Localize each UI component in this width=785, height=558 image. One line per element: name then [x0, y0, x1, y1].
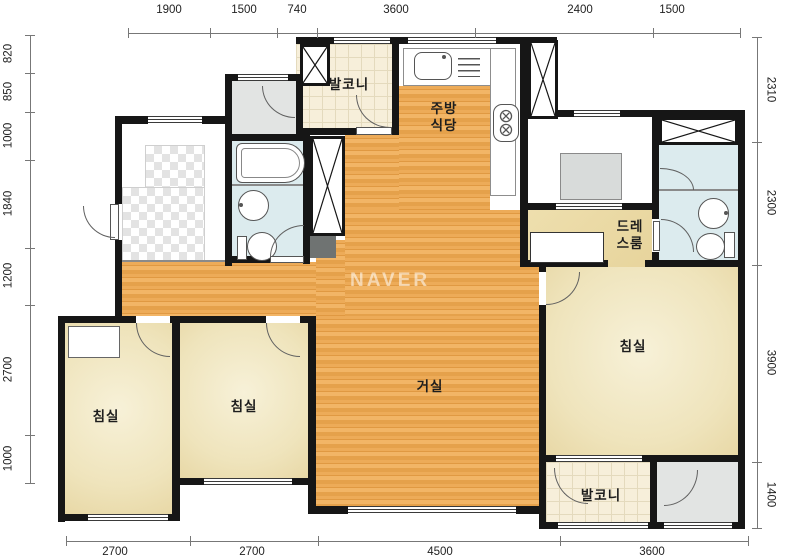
wall-segment — [516, 506, 546, 514]
stove-icon — [493, 104, 519, 142]
closet-box — [68, 326, 120, 358]
toilet-tank-icon — [237, 236, 247, 260]
window — [556, 455, 642, 462]
washbasin-tap-icon — [724, 211, 728, 215]
dimension-tick — [318, 536, 319, 546]
dimension-line-top — [128, 33, 741, 34]
room-label-balcony-bottom: 발코니 — [568, 487, 634, 504]
door-leaf — [270, 256, 304, 263]
duct-shaft — [659, 117, 738, 145]
window — [408, 37, 496, 44]
wall-segment — [180, 478, 204, 485]
wall-segment — [58, 514, 88, 521]
wall-segment — [58, 316, 136, 323]
dimension-label: 2400 — [558, 4, 602, 17]
dimension-label: 1400 — [764, 473, 777, 517]
dimension-label: 3600 — [630, 546, 674, 558]
wall-segment — [648, 522, 664, 529]
wall-segment — [58, 316, 65, 522]
dimension-label: 850 — [3, 70, 16, 114]
dimension-tick — [25, 160, 35, 161]
dimension-tick — [66, 536, 67, 546]
dimension-tick — [752, 142, 762, 143]
dimension-tick — [25, 112, 35, 113]
dimension-label: 2700 — [230, 546, 274, 558]
wall-segment — [642, 455, 745, 462]
dimension-tick — [25, 35, 35, 36]
dimension-label: 1900 — [147, 4, 191, 17]
wall-segment — [308, 316, 316, 514]
dimension-label: 740 — [275, 4, 319, 17]
wall-segment — [650, 462, 657, 529]
room-label-kitchen: 주방 식당 — [418, 100, 470, 134]
dimension-tick — [128, 28, 129, 38]
room-label-dressroom: 드레 스룸 — [606, 218, 654, 252]
dimension-tick — [25, 483, 35, 484]
duct-shaft — [310, 136, 345, 236]
master-bedroom-floor — [546, 267, 738, 455]
dimension-tick — [752, 265, 762, 266]
floor-boundary-line — [122, 260, 225, 262]
wall-segment — [539, 262, 546, 272]
wardrobe-box — [530, 232, 604, 263]
room-label-kitchen-line2: 식당 — [418, 117, 470, 134]
transparent-checker-area — [146, 146, 204, 188]
wall-segment — [539, 455, 556, 462]
bathtub-icon — [236, 143, 305, 183]
dimension-label: 1000 — [3, 437, 16, 481]
room-label-living: 거실 — [400, 378, 460, 395]
bathroom-divider-line — [232, 184, 303, 186]
window — [148, 116, 202, 123]
duct-shaft — [528, 40, 558, 119]
room-label-balcony-top: 발코니 — [317, 76, 381, 93]
window — [558, 522, 648, 529]
wall-segment — [732, 522, 745, 529]
dimension-tick — [317, 28, 318, 38]
wall-segment — [202, 116, 232, 124]
washbasin-tap-icon — [239, 203, 243, 207]
door-leaf — [356, 127, 392, 135]
wall-segment — [738, 110, 745, 529]
dimension-tick — [190, 536, 191, 546]
dimension-tick — [25, 305, 35, 306]
window — [334, 37, 390, 44]
window — [88, 514, 168, 521]
wall-segment — [539, 522, 558, 529]
wall-segment — [172, 316, 180, 521]
living-wood-floor — [345, 135, 399, 210]
dimension-label: 1000 — [3, 114, 16, 158]
dimension-tick — [25, 435, 35, 436]
dimension-tick — [748, 536, 749, 546]
window — [238, 74, 288, 81]
dimension-line-right — [757, 37, 758, 528]
wall-segment — [115, 240, 122, 323]
dimension-label: 1200 — [3, 254, 16, 298]
dimension-line-bottom — [66, 541, 749, 542]
faucet-icon — [442, 55, 446, 59]
wall-segment — [652, 117, 659, 219]
dimension-label: 3600 — [374, 4, 418, 17]
dimension-label: 3900 — [764, 341, 777, 385]
dimension-tick — [740, 28, 741, 38]
dimension-tick — [210, 28, 211, 38]
room-label-bedroom-left: 침실 — [76, 408, 136, 425]
room-label-dressroom-line1: 드레 — [606, 218, 654, 235]
dimension-tick — [752, 37, 762, 38]
dimension-tick — [560, 536, 561, 546]
window — [574, 110, 620, 117]
room-label-bedroom-master: 침실 — [603, 338, 663, 355]
naver-watermark: NAVER — [350, 270, 430, 292]
dimension-label: 1500 — [222, 4, 266, 17]
window — [664, 522, 732, 529]
dimension-tick — [475, 28, 476, 38]
floor-plan: 발코니 주방 식당 드레 스룸 거실 침실 침실 침실 발코니 NAVER 19… — [0, 0, 785, 558]
washer-box — [560, 153, 622, 200]
window — [556, 203, 622, 210]
dish-rack-icon — [458, 58, 480, 77]
door-leaf — [653, 221, 660, 251]
dimension-tick — [25, 248, 35, 249]
dimension-tick — [25, 73, 35, 74]
window — [204, 478, 292, 485]
dimension-tick — [277, 28, 278, 38]
wall-segment — [392, 37, 399, 135]
exterior-door-arc — [83, 206, 115, 238]
wall-segment — [645, 260, 745, 267]
room-label-dressroom-line2: 스룸 — [606, 235, 654, 252]
dimension-label: 2700 — [3, 348, 16, 392]
toilet-bowl-icon — [696, 233, 725, 260]
living-wood-floor — [316, 316, 539, 506]
dimension-label: 1500 — [650, 4, 694, 17]
wall-segment — [539, 305, 546, 529]
wall-segment — [520, 37, 528, 267]
room-label-kitchen-line1: 주방 — [418, 100, 470, 117]
wall-segment — [170, 316, 266, 323]
dimension-line-left — [30, 35, 31, 483]
transparent-checker-area — [123, 188, 204, 261]
bathtub-inner — [241, 148, 300, 178]
living-wood-floor — [345, 210, 539, 316]
room-label-bedroom-middle: 침실 — [214, 398, 274, 415]
dimension-label: 2700 — [93, 546, 137, 558]
wall-segment — [225, 134, 310, 141]
dimension-tick — [653, 28, 654, 38]
dimension-label: 2300 — [764, 181, 777, 225]
dimension-label: 1840 — [3, 182, 16, 226]
dimension-tick — [752, 462, 762, 463]
duct-box — [310, 236, 336, 258]
wall-segment — [225, 74, 232, 266]
corridor-wood-floor — [122, 262, 316, 316]
toilet-tank-icon — [724, 232, 735, 258]
wall-segment — [303, 134, 310, 264]
dimension-label: 4500 — [418, 546, 462, 558]
window — [348, 506, 516, 513]
wall-segment — [115, 116, 122, 204]
dimension-tick — [752, 528, 762, 529]
sink-icon — [414, 52, 452, 80]
dimension-label: 2310 — [764, 68, 777, 112]
